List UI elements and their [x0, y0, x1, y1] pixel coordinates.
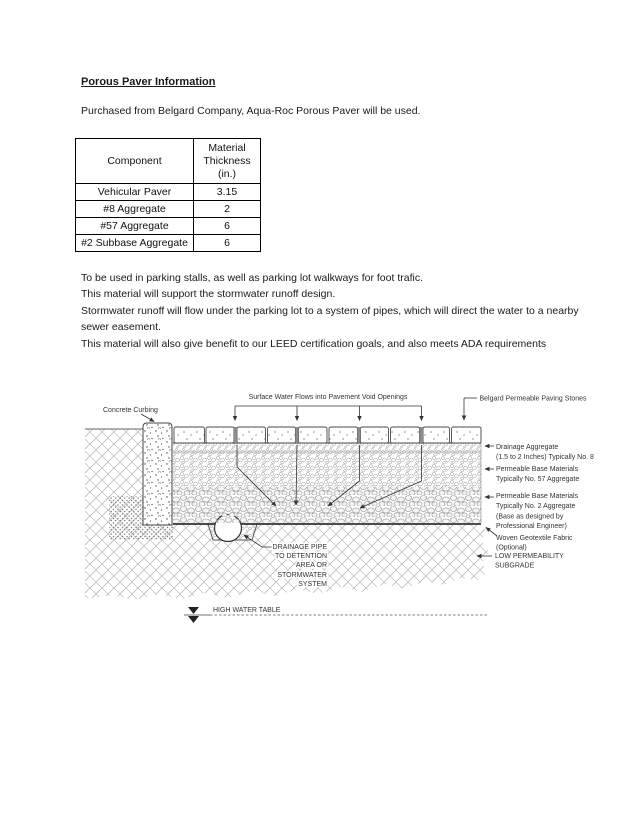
base2-label-line4: Professional Engineer) — [496, 523, 567, 530]
concrete-curb — [143, 423, 172, 525]
cell-thickness: 6 — [194, 218, 261, 235]
drainage-pipe-label-line2: TO DETENTION — [275, 553, 327, 560]
surface-water-arrows — [235, 406, 422, 421]
cell-thickness: 2 — [194, 201, 261, 218]
note-line: Stormwater runoff will flow under the pa… — [81, 303, 579, 319]
intro-paragraph: Purchased from Belgard Company, Aqua-Roc… — [81, 105, 420, 117]
page-title: Porous Paver Information — [81, 76, 215, 88]
subgrade-label-line1: LOW PERMEABILITY — [495, 553, 564, 560]
drainage-pipe-label-line5: SYSTEM — [298, 581, 327, 588]
drainage-pipe-label-line1: DRAINAGE PIPE — [273, 544, 328, 551]
base2-label-line3: (Base as designed by — [496, 514, 564, 521]
table-row: #57 Aggregate 6 — [76, 218, 261, 235]
note-line: To be used in parking stalls, as well as… — [81, 270, 579, 286]
cell-thickness: 3.15 — [194, 184, 261, 201]
table-row: #8 Aggregate 2 — [76, 201, 261, 218]
note-line: This material will support the stormwate… — [81, 286, 579, 302]
drainage-aggregate-label-line1: Drainage Aggregate — [496, 444, 558, 451]
cell-component: Vehicular Paver — [76, 184, 194, 201]
note-line: sewer easement. — [81, 319, 579, 335]
table-header-component: Component — [76, 139, 194, 184]
cell-component: #57 Aggregate — [76, 218, 194, 235]
drainage-pipe-label-line3: AREA OR — [296, 562, 327, 569]
cell-component: #2 Subbase Aggregate — [76, 235, 194, 252]
table-row: Vehicular Paver 3.15 — [76, 184, 261, 201]
material-thickness-table: Component Material Thickness (in.) Vehic… — [75, 138, 261, 252]
document-page: Porous Paver Information Purchased from … — [0, 0, 638, 826]
base57-label-line1: Permeable Base Materials — [496, 466, 579, 473]
geotextile-label-line1: Woven Geotextile Fabric — [496, 535, 573, 542]
geotextile-label-line2: (Optional) — [496, 545, 527, 552]
drainage-pipe-label-line4: STORMWATER — [277, 572, 327, 579]
cross-section-diagram: Surface Water Flows into Pavement Void O… — [80, 385, 638, 628]
table-header-row: Component Material Thickness (in.) — [76, 139, 261, 184]
concrete-curbing-label: Concrete Curbing — [103, 407, 158, 414]
base2-label-line2: Typically No. 2 Aggregate — [496, 503, 575, 510]
table-row: #2 Subbase Aggregate 6 — [76, 235, 261, 252]
base2-label-line1: Permeable Base Materials — [496, 493, 579, 500]
cell-thickness: 6 — [194, 235, 261, 252]
table-header-thickness: Material Thickness (in.) — [194, 139, 261, 184]
cell-component: #8 Aggregate — [76, 201, 194, 218]
subgrade-label-line2: SUBGRADE — [495, 563, 535, 570]
notes-paragraphs: To be used in parking stalls, as well as… — [81, 270, 579, 352]
note-line: This material will also give benefit to … — [81, 336, 579, 352]
base57-label-line2: Typically No. 57 Aggregate — [496, 476, 579, 483]
drainage-aggregate-label-line2: (1.5 to 2 Inches) Typically No. 8 — [496, 454, 594, 461]
high-water-table-label: HIGH WATER TABLE — [213, 607, 281, 614]
paving-stones-label: Belgard Permeable Paving Stones — [480, 396, 588, 403]
paver-row — [174, 427, 481, 443]
surface-water-label: Surface Water Flows into Pavement Void O… — [249, 394, 408, 401]
